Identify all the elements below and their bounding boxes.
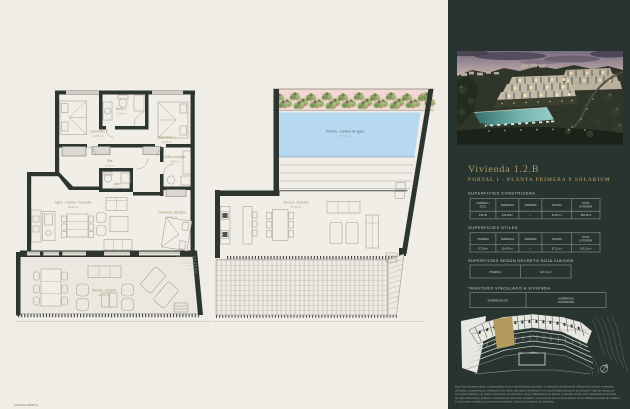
svg-text:VIVIENDA: VIVIENDA — [477, 238, 489, 241]
svg-text:PISCINA: PISCINA — [552, 204, 562, 207]
svg-text:27.22 m²: 27.22 m² — [552, 247, 562, 251]
svg-text:Vivienda 1.2.B: Vivienda 1.2.B — [468, 164, 539, 175]
svg-text:de exigencias técnicas, jurídi: de exigencias técnicas, jurídicas o come… — [455, 397, 620, 400]
svg-text:114.59 m²: 114.59 m² — [502, 247, 514, 251]
svg-text:ZZCC: ZZCC — [480, 206, 487, 209]
svg-text:17.61 m²: 17.61 m² — [167, 215, 178, 219]
svg-text:SUPERFICIES SEGÚN DECRETO BOJA: SUPERFICIES SEGÚN DECRETO BOJA 218/2005 — [468, 258, 574, 263]
svg-text:Aseo: Aseo — [113, 182, 120, 186]
svg-text:57.39 m²: 57.39 m² — [291, 205, 302, 209]
svg-text:167.01 m²: 167.01 m² — [540, 270, 552, 274]
svg-text:orientativo, no propuesta de c: orientativo, no propuesta de contratació… — [455, 389, 615, 392]
svg-text:JARDINES: JARDINES — [524, 204, 537, 207]
svg-text:TERRAZAS: TERRAZAS — [501, 204, 515, 207]
svg-text:135.45: 135.45 — [479, 213, 487, 217]
svg-text:4.20 m²: 4.20 m² — [116, 112, 125, 116]
svg-text:son a título indicativo y de c: son a título indicativo y de carácter in… — [455, 393, 617, 396]
svg-text:Baño 2: Baño 2 — [116, 107, 126, 111]
svg-text:—: — — [529, 248, 532, 251]
svg-text:126.82m²: 126.82m² — [502, 213, 513, 217]
svg-text:TRASTERO VINCULADO A VIVIENDA: TRASTERO VINCULADO A VIVIENDA — [468, 286, 550, 291]
svg-text:11.50 m²: 11.50 m² — [93, 134, 104, 138]
svg-text:SUPERFICIE ÚTIL: SUPERFICIE ÚTIL — [487, 299, 509, 302]
svg-text:Terraza - pérgola: Terraza - pérgola — [92, 289, 116, 293]
svg-text:SUPERFICIES ÚTILES: SUPERFICIES ÚTILES — [468, 225, 518, 230]
svg-text:ESCALA GRÁFICA: ESCALA GRÁFICA — [14, 403, 38, 407]
svg-text:158.25m²: 158.25m² — [580, 213, 591, 217]
svg-text:y la decoración reflejados no: y la decoración reflejados no se encuent… — [455, 401, 555, 404]
svg-text:PORTAL 1 - PLANTA PRIMERA Y SO: PORTAL 1 - PLANTA PRIMERA Y SOLARIUM — [468, 178, 611, 183]
svg-text:2.20 m²: 2.20 m² — [112, 186, 121, 190]
svg-text:Terraza - Solarium: Terraza - Solarium — [283, 201, 309, 205]
svg-text:Salón - Cocina - Comedor: Salón - Cocina - Comedor — [55, 201, 93, 205]
svg-text:Dist.: Dist. — [107, 159, 113, 163]
svg-text:—: — — [529, 214, 532, 217]
svg-text:CONSTRUIDA: CONSTRUIDA — [558, 301, 575, 304]
svg-text:Dormitorio principal: Dormitorio principal — [158, 210, 186, 214]
svg-text:12.20 m²: 12.20 m² — [162, 140, 173, 144]
svg-text:Dormitorio 2: Dormitorio 2 — [90, 129, 108, 133]
svg-text:Baño principal: Baño principal — [165, 155, 185, 159]
svg-text:JARDINES: JARDINES — [524, 238, 537, 241]
svg-text:PISCINA: PISCINA — [552, 238, 562, 241]
svg-text:97.25m²: 97.25m² — [478, 247, 488, 251]
svg-text:SUPERFICIES CONSTRUIDAS: SUPERFICIES CONSTRUIDAS — [468, 191, 535, 196]
svg-text:28.62 m²: 28.62 m² — [68, 205, 79, 209]
svg-text:EXTERIOR: EXTERIOR — [579, 206, 592, 209]
svg-text:EXTERIOR: EXTERIOR — [579, 240, 592, 243]
svg-text:Nota: Este documento plano, su: Nota: Este documento plano, su parte grá… — [455, 386, 614, 389]
svg-text:TERRAZAS: TERRAZAS — [501, 238, 515, 241]
svg-text:48.95 m²: 48.95 m² — [99, 293, 110, 297]
svg-text:5.02 m²: 5.02 m² — [105, 164, 114, 168]
svg-text:4.50 m²: 4.50 m² — [170, 160, 179, 164]
svg-text:Dormitorio 1: Dormitorio 1 — [158, 136, 176, 140]
svg-text:142.19 m²: 142.19 m² — [580, 247, 592, 251]
svg-text:VIVIENDA: VIVIENDA — [489, 271, 501, 274]
svg-text:Piscina - Lámina de agua: Piscina - Lámina de agua — [326, 130, 364, 134]
svg-text:12.55 m²: 12.55 m² — [552, 213, 562, 217]
svg-text:27.22 m²: 27.22 m² — [339, 135, 350, 139]
